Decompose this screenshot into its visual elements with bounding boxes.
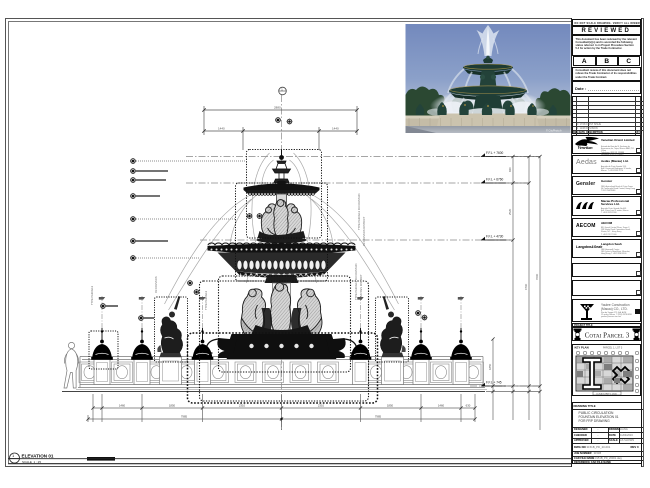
- svg-text:1: 1: [12, 453, 15, 458]
- svg-text:03 FOUNTAIN: 03 FOUNTAIN: [154, 276, 158, 293]
- svg-text:F.F.L + 6760: F.F.L + 6760: [486, 177, 504, 181]
- svg-text:KEY PLAN: KEY PLAN: [575, 346, 589, 350]
- svg-text:2880: 2880: [274, 106, 281, 110]
- svg-text:F.F.L + 7600: F.F.L + 7600: [486, 151, 504, 155]
- svg-text:03 FOUNTAIN DISTRICT: 03 FOUNTAIN DISTRICT: [362, 216, 366, 246]
- svg-text:2520: 2520: [508, 208, 512, 215]
- svg-text:840: 840: [508, 167, 512, 172]
- svg-text:630: 630: [466, 404, 471, 408]
- svg-text:PARCEL 1, LOT 3: PARCEL 1, LOT 3: [603, 347, 623, 350]
- svg-text:F.F.L + 4730: F.F.L + 4730: [486, 234, 504, 238]
- svg-text:Venetian: Venetian: [578, 145, 594, 150]
- svg-text:7985: 7985: [375, 415, 382, 419]
- svg-text:6760: 6760: [524, 283, 528, 290]
- svg-text:1460: 1460: [119, 404, 126, 408]
- svg-text:F.F.L + 745: F.F.L + 745: [486, 380, 502, 384]
- svg-text:TYPE PARCEL3 03 FOUNTAIN: TYPE PARCEL3 03 FOUNTAIN: [354, 263, 358, 300]
- svg-text:7985: 7985: [181, 415, 188, 419]
- svg-text:1440: 1440: [218, 127, 225, 131]
- svg-text:2310: 2310: [239, 404, 246, 408]
- svg-text:1850: 1850: [488, 363, 492, 370]
- svg-text:TYPE PARCEL3: TYPE PARCEL3: [204, 290, 208, 310]
- svg-text:COTAI STRIP 1:2500: COTAI STRIP 1:2500: [596, 392, 618, 395]
- svg-text:1850: 1850: [169, 404, 176, 408]
- svg-text:1850: 1850: [387, 404, 394, 408]
- svg-text:ELEVATION 01: ELEVATION 01: [22, 454, 54, 459]
- svg-text:TYPE PARCEL3 03 FOUNTAIN: TYPE PARCEL3 03 FOUNTAIN: [357, 193, 361, 230]
- svg-text:COTAI PARCEL 3: COTAI PARCEL 3: [585, 332, 630, 340]
- svg-text:1440: 1440: [332, 127, 339, 131]
- svg-text:2310: 2310: [318, 404, 325, 408]
- svg-text:TYPE PARCEL3: TYPE PARCEL3: [90, 285, 94, 305]
- svg-text:© CityPhoto.fr: © CityPhoto.fr: [546, 130, 562, 133]
- svg-text:7600: 7600: [535, 273, 539, 280]
- svg-text:1460: 1460: [438, 404, 445, 408]
- svg-text:FOUNTAIN DISTRICT: FOUNTAIN DISTRICT: [359, 274, 363, 300]
